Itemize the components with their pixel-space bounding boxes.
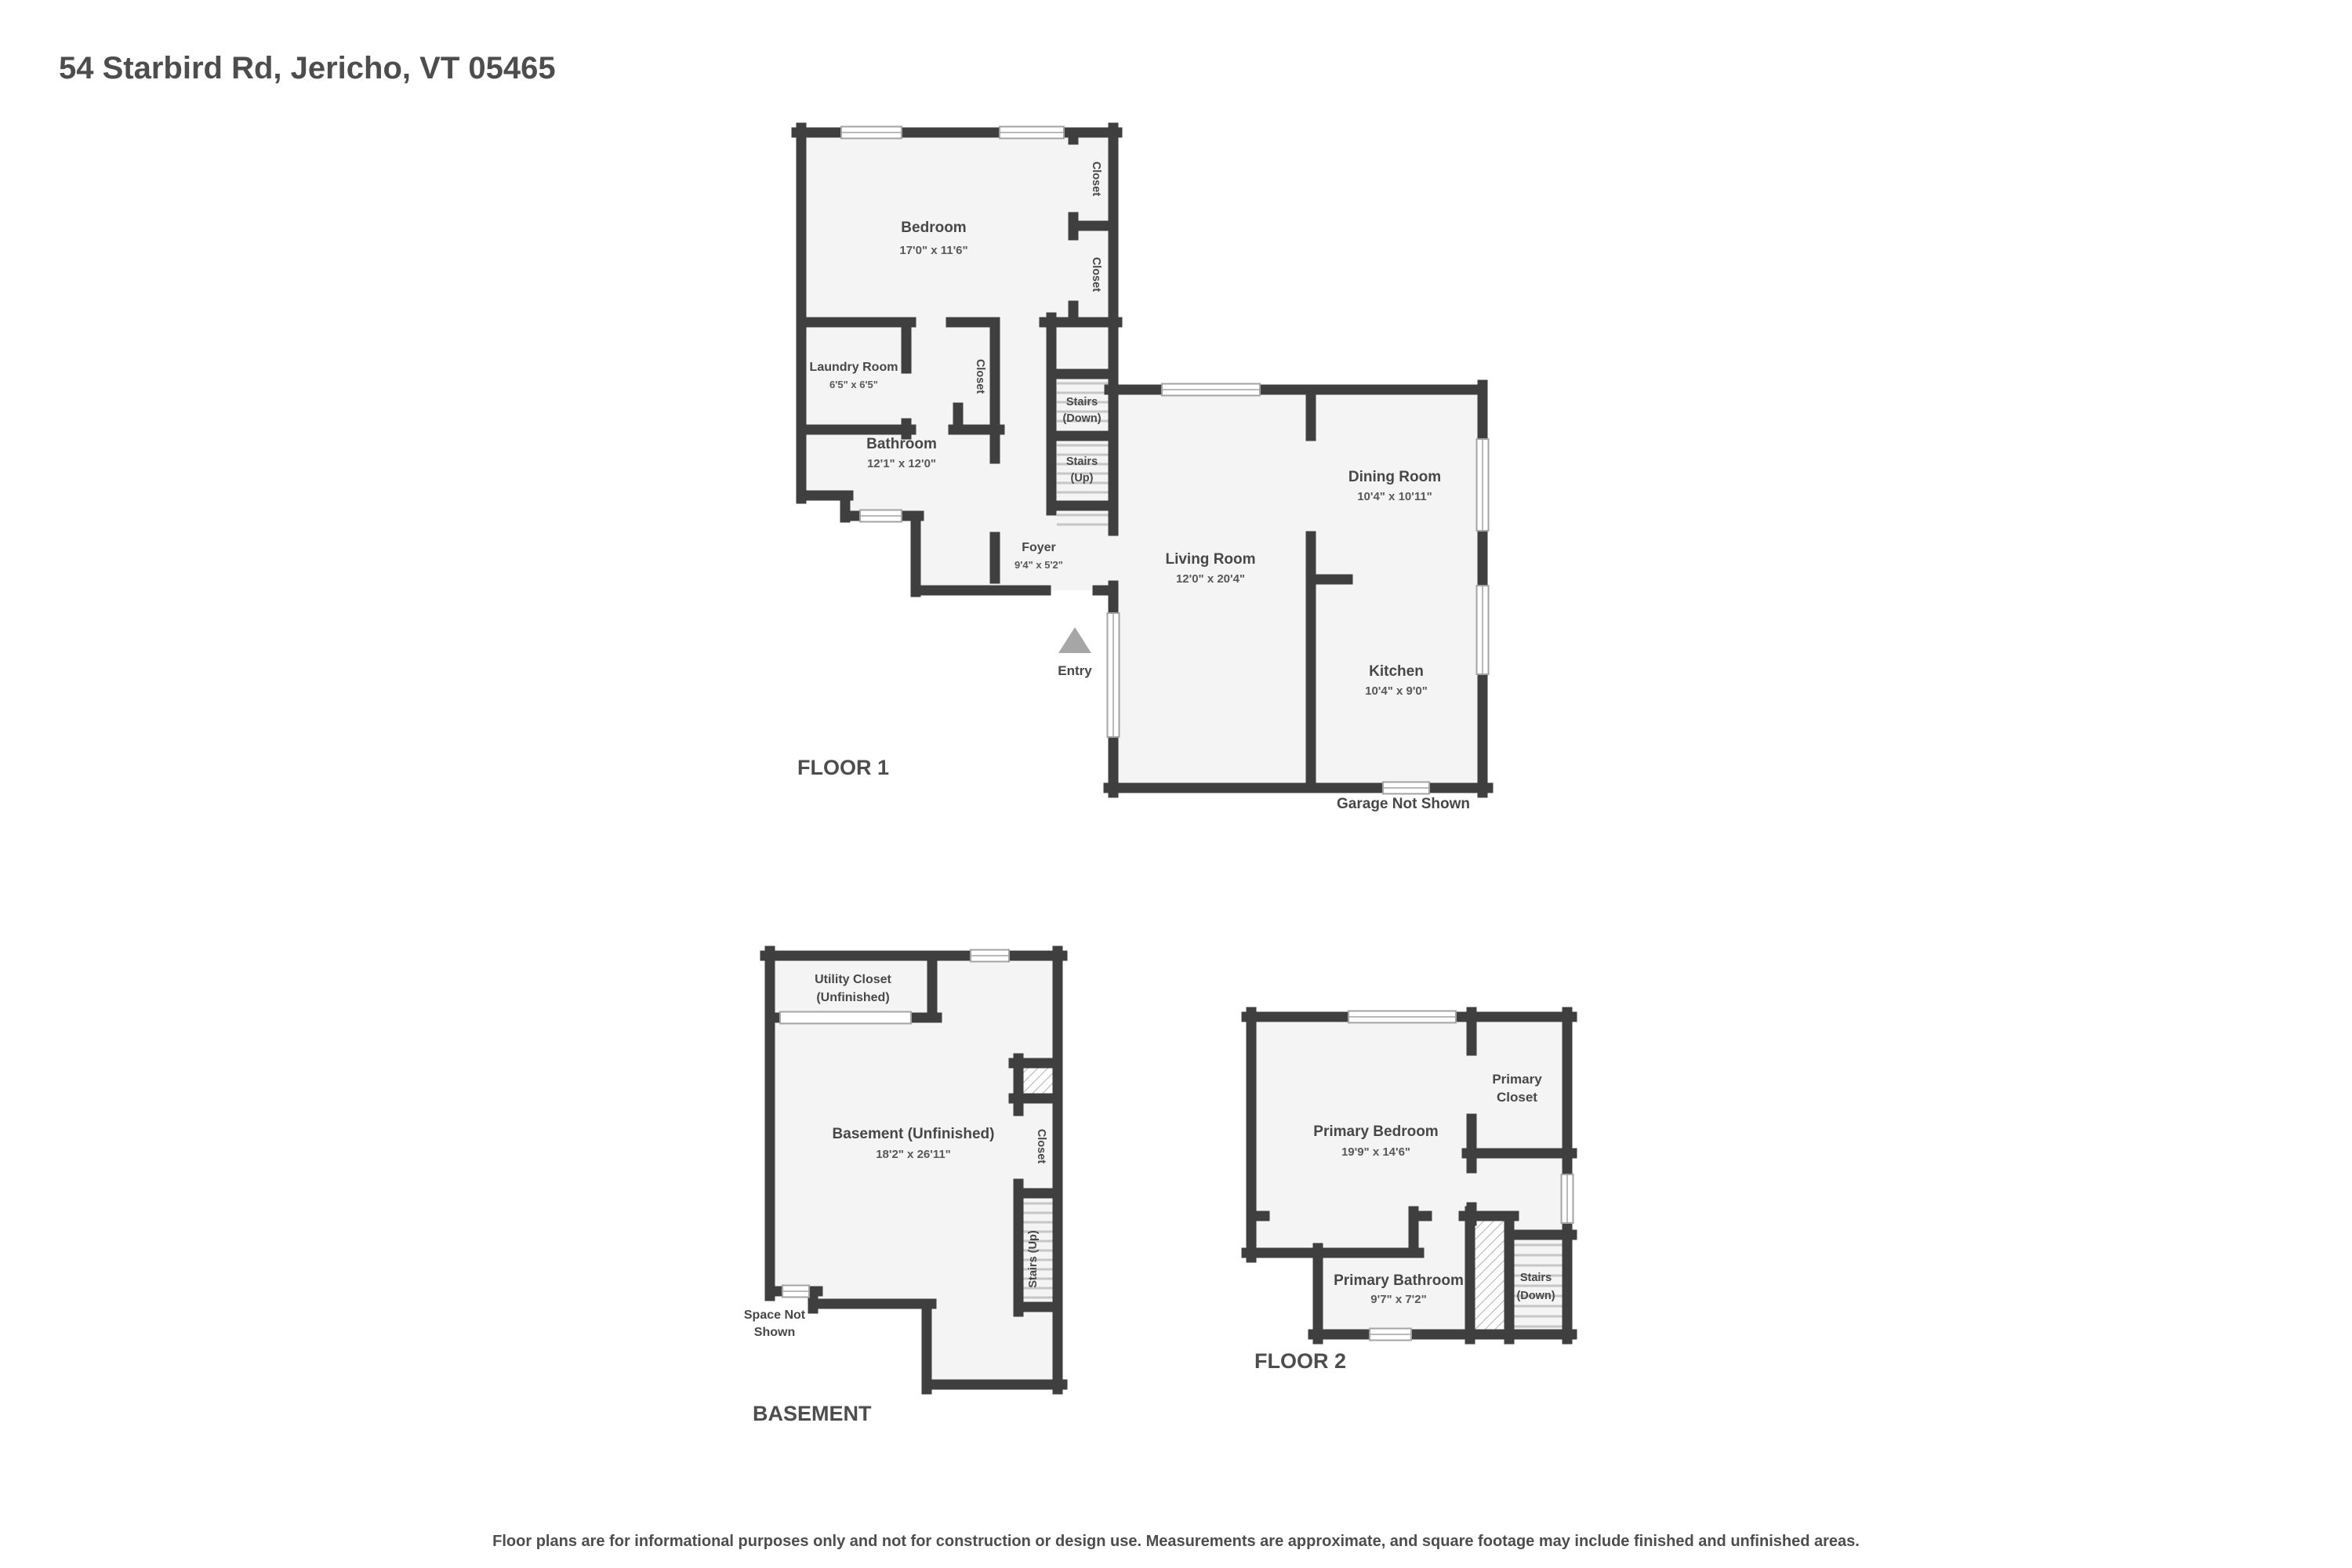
room-label-closet-top: Closet <box>1090 162 1102 196</box>
room-label-laundry: Laundry Room <box>810 361 898 374</box>
floor1-title: FLOOR 1 <box>797 756 889 779</box>
stairs-down-label-line2: (Down) <box>1062 412 1101 425</box>
room-label-basement: Basement (Unfinished) <box>833 1126 995 1142</box>
window <box>1162 384 1260 396</box>
room-label-primary-bedroom: Primary Bedroom <box>1313 1123 1438 1140</box>
floor1-plan: Bedroom 17'0" x 11'6" Closet Closet Laun… <box>797 127 1489 813</box>
page-title: 54 Starbird Rd, Jericho, VT 05465 <box>59 51 556 85</box>
floor2-plan: Primary Bedroom 19'9" x 14'6" Primary Cl… <box>1247 1011 1573 1374</box>
window <box>971 950 1009 962</box>
window <box>1477 586 1489 674</box>
basement-stairs-up-label: Stairs (Up) <box>1027 1230 1040 1287</box>
window <box>1370 1329 1411 1341</box>
entry-label: Entry <box>1058 663 1092 678</box>
floor2-stairs-down-line2: (Down) <box>1516 1290 1555 1302</box>
floor2-stairs-down-line1: Stairs <box>1520 1272 1552 1284</box>
room-dims-primary-bedroom: 19'9" x 14'6" <box>1341 1145 1410 1159</box>
room-label-closet-hall: Closet <box>974 359 986 394</box>
room-label-basement-closet: Closet <box>1035 1129 1047 1163</box>
stairs-up-label-line1: Stairs <box>1066 456 1098 468</box>
room-label-dining: Dining Room <box>1348 469 1441 485</box>
space-note-line1: Space Not <box>744 1308 806 1322</box>
stairs-down-label-line1: Stairs <box>1066 396 1098 408</box>
room-dims-bathroom: 12'1" x 12'0" <box>867 457 936 470</box>
room-label-bathroom: Bathroom <box>866 436 937 452</box>
basement-plan: Utility Closet (Unfinished) Basement (Un… <box>744 950 1062 1426</box>
window <box>1348 1011 1456 1023</box>
window <box>860 510 902 522</box>
room-dims-laundry: 6'5" x 6'5" <box>829 379 878 390</box>
room-label-utility-line2: (Unfinished) <box>816 991 889 1004</box>
window <box>1108 613 1120 737</box>
stairs-up-label-line2: (Up) <box>1071 472 1094 485</box>
window <box>1477 439 1489 531</box>
room-dims-primary-bathroom: 9'7" x 7'2" <box>1370 1293 1426 1306</box>
room-label-living: Living Room <box>1165 551 1255 568</box>
floor2-hatch-area <box>1475 1221 1505 1330</box>
basement-title: BASEMENT <box>753 1402 872 1425</box>
window <box>1000 127 1064 139</box>
window <box>782 1286 809 1298</box>
room-label-foyer: Foyer <box>1022 541 1056 554</box>
floor-plan-sheet: 54 Starbird Rd, Jericho, VT 05465 <box>0 0 2352 1568</box>
opening <box>780 1012 911 1024</box>
floor-plan-canvas: 54 Starbird Rd, Jericho, VT 05465 <box>0 0 2352 1568</box>
window <box>1383 782 1429 794</box>
room-label-closet-bottom: Closet <box>1090 257 1102 292</box>
entry-arrow-icon <box>1058 627 1091 653</box>
window <box>841 127 902 139</box>
room-label-primary-bathroom: Primary Bathroom <box>1334 1272 1464 1289</box>
disclaimer-text: Floor plans are for informational purpos… <box>492 1533 1860 1550</box>
room-label-bedroom: Bedroom <box>901 220 966 236</box>
room-dims-foyer: 9'4" x 5'2" <box>1014 559 1063 571</box>
room-label-primary-closet-line2: Closet <box>1497 1090 1537 1105</box>
room-label-utility-line1: Utility Closet <box>815 973 891 986</box>
room-label-kitchen: Kitchen <box>1369 663 1424 680</box>
basement-hatch-area <box>1023 1068 1053 1094</box>
room-label-primary-closet-line1: Primary <box>1492 1072 1542 1087</box>
room-dims-kitchen: 10'4" x 9'0" <box>1365 684 1428 698</box>
room-dims-living: 12'0" x 20'4" <box>1176 572 1245 586</box>
room-dims-bedroom: 17'0" x 11'6" <box>899 244 967 257</box>
space-note-line2: Shown <box>754 1326 795 1339</box>
room-dims-dining: 10'4" x 10'11" <box>1357 490 1432 503</box>
garage-note: Garage Not Shown <box>1337 796 1470 812</box>
floor2-title: FLOOR 2 <box>1254 1349 1346 1373</box>
window <box>1562 1174 1573 1223</box>
room-dims-basement: 18'2" x 26'11" <box>876 1148 951 1161</box>
